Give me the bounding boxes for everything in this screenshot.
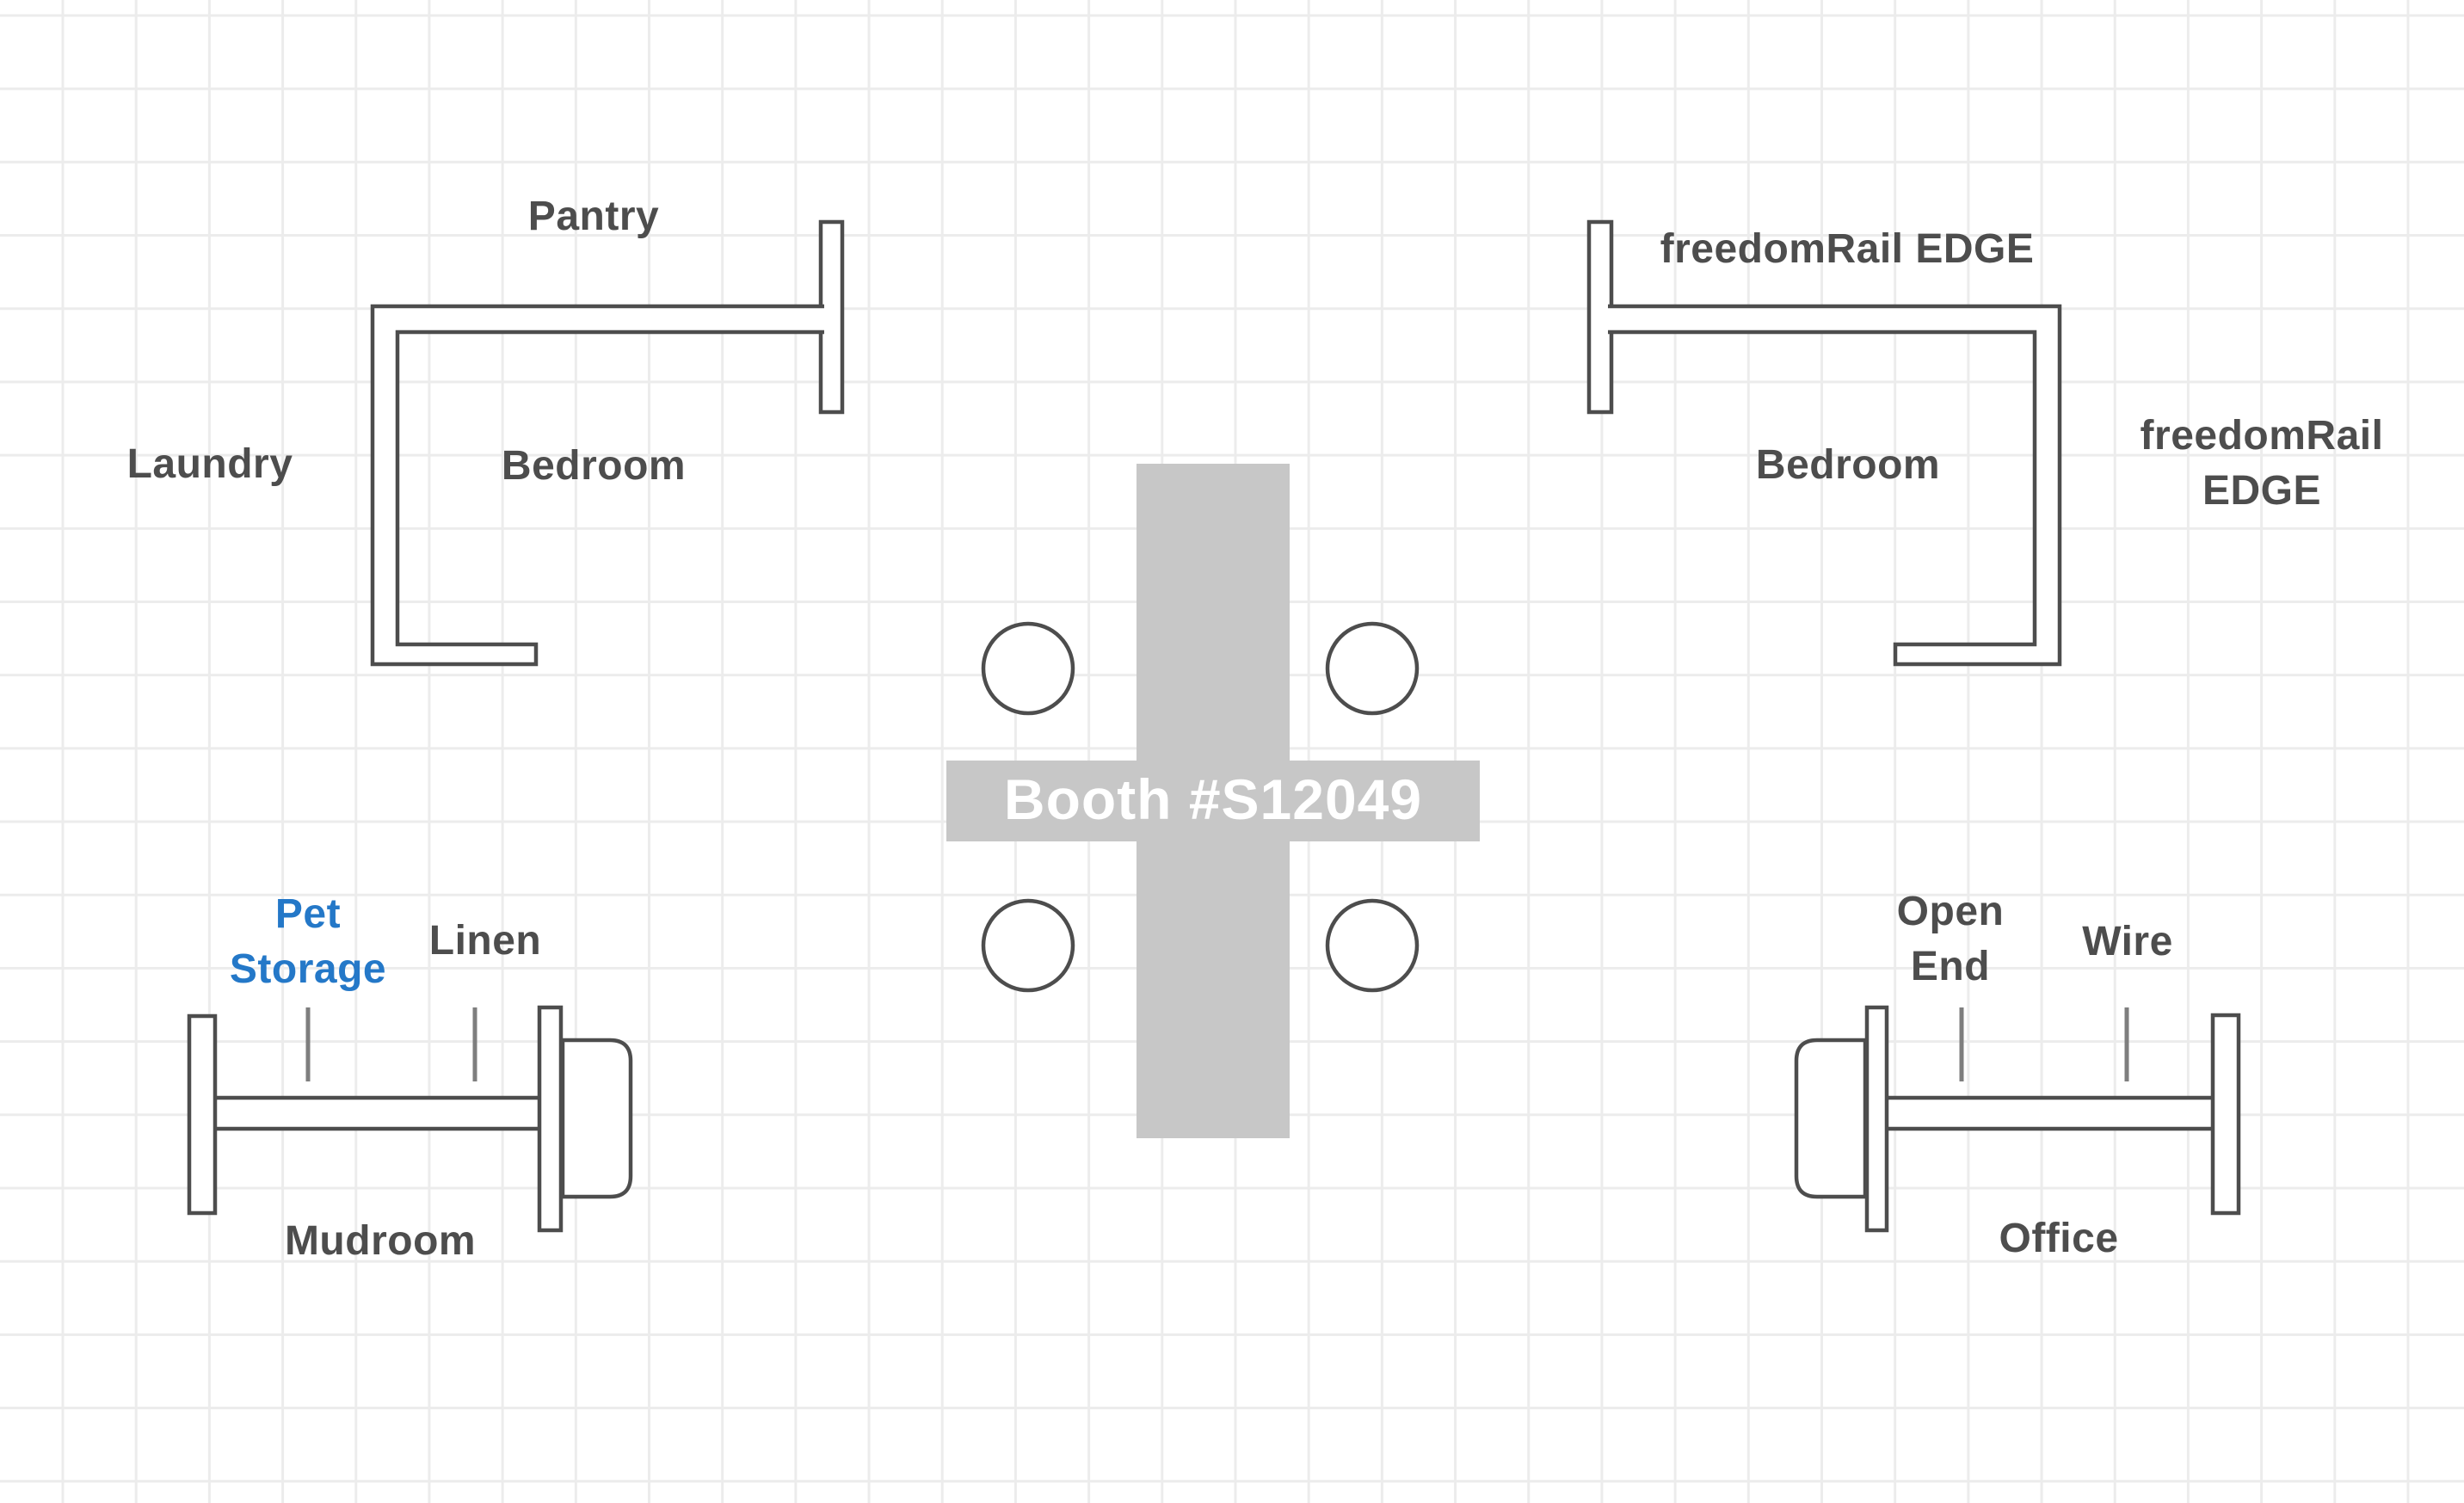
pillar-circle-top-right <box>1327 624 1417 713</box>
office-unit-wall-band <box>1888 1100 2211 1127</box>
mudroom-unit-rounded-return <box>563 1040 631 1197</box>
pet-storage-label: Pet Storage <box>230 887 386 997</box>
office-unit-rounded-return <box>1796 1040 1865 1197</box>
pillar-circle-bottom-right <box>1327 901 1417 990</box>
mudroom-unit-left-endcap <box>189 1016 215 1213</box>
mudroom-label: Mudroom <box>285 1214 476 1269</box>
office-unit-left-endcap <box>1867 1007 1887 1230</box>
linen-label: Linen <box>429 914 542 969</box>
open-end-label: Open End <box>1897 884 2005 995</box>
floorplan-drawing <box>0 0 2464 1503</box>
freedomrail-edge-top-label: freedomRail EDGE <box>1660 222 2035 277</box>
mudroom-unit-wall-band <box>217 1100 538 1127</box>
mudroom-unit-right-endcap <box>539 1007 561 1230</box>
office-label: Office <box>1999 1211 2118 1266</box>
pillar-circle-bottom-left <box>983 901 1073 990</box>
freedomrail-edge-right-label: freedomRail EDGE <box>2141 409 2384 519</box>
pantry-label: Pantry <box>528 189 659 244</box>
laundry-label: Laundry <box>127 437 293 492</box>
bedroom-left-label: Bedroom <box>502 439 686 494</box>
booth-number-label: Booth #S12049 <box>1004 767 1422 832</box>
wire-label: Wire <box>2082 915 2173 970</box>
office-unit-right-endcap <box>2213 1015 2239 1213</box>
floorplan-canvas: Pantry Laundry Bedroom freedomRail EDGE … <box>0 0 2464 1503</box>
bedroom-right-label: Bedroom <box>1756 438 1940 493</box>
pillar-circle-top-left <box>983 624 1073 713</box>
